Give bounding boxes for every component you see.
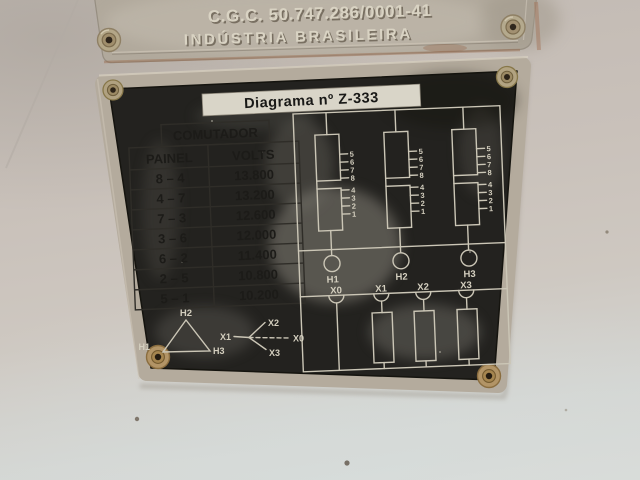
table-cell-painel: 2 – 5 [159,270,189,286]
hv-bushing-label: H2 [395,272,408,283]
table-cell-painel: 5 – 1 [160,290,190,306]
table-cell-volts: 11.400 [237,247,277,264]
delta-left-label: H1 [138,342,150,352]
table-cell-volts: 12.600 [236,207,276,224]
screw-icon [501,15,525,39]
delta-top-label: H2 [180,308,192,319]
screw-icon [98,29,121,52]
hv-bushing-label: H3 [463,269,476,280]
screw-icon [103,80,123,100]
lv-bushing-label: X1 [375,283,388,294]
tap-number: 8 [350,174,355,183]
screw-icon [478,365,501,388]
lv-bushing-label: X2 [417,282,429,293]
table-cell-volts: 10.200 [239,287,279,304]
lv-bushing-label: X3 [460,280,472,291]
table-cell-painel: 6 – 2 [159,250,189,266]
nameplate-photo: C.G.C. 50.747.286/0001-41 C.G.C. 50.747.… [0,0,640,480]
table-cell-volts: 10.800 [238,267,278,284]
wye-lower-label: X3 [269,348,280,358]
lv-bushing-label: X0 [330,285,342,296]
hv-bushing-label: H1 [326,274,339,286]
tap-number: 8 [419,171,424,180]
table-cell-painel: 7 – 3 [157,210,187,226]
col-header-volts: VOLTS [232,147,275,164]
wye-upper-label: X2 [268,318,279,328]
table-cell-painel: 4 – 7 [156,190,186,206]
wye-line-label: X1 [220,332,231,342]
wye-neutral-label: X0 [293,334,304,344]
table-cell-painel: 3 – 6 [158,230,188,246]
table-cell-painel: 8 – 4 [155,170,185,186]
screw-icon [497,67,518,88]
top-plate: C.G.C. 50.747.286/0001-41 C.G.C. 50.747.… [94,0,560,63]
col-header-painel: PAINEL [146,150,193,167]
delta-right-label: H3 [213,346,225,356]
tap-number: 1 [421,207,426,216]
tap-number: 1 [352,210,357,219]
tap-number: 8 [487,168,492,177]
table-cell-volts: 13.200 [235,187,275,204]
diagram-plate: Diagrama nº Z-333 COMUTADOR PAINEL VOLTS… [98,57,529,397]
tap-number: 1 [489,204,494,213]
table-cell-volts: 12.000 [236,227,276,244]
table-cell-volts: 13.800 [234,167,274,184]
